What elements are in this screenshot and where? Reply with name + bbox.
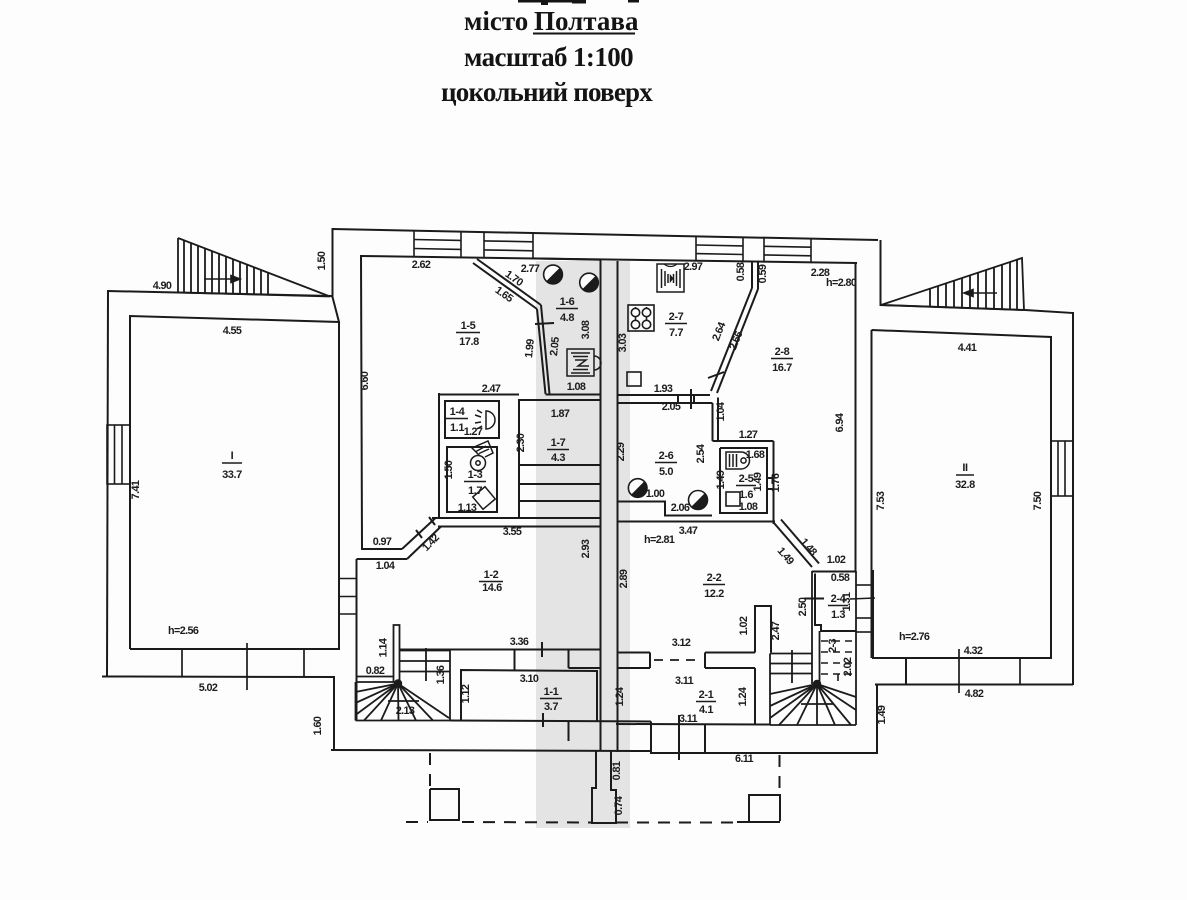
svg-text:1-2: 1-2 xyxy=(484,569,499,581)
svg-text:2.50: 2.50 xyxy=(797,597,809,616)
svg-text:2-1: 2-1 xyxy=(699,689,714,701)
svg-text:1.87: 1.87 xyxy=(551,408,570,420)
svg-text:1.14: 1.14 xyxy=(378,638,390,657)
svg-text:2.06: 2.06 xyxy=(671,502,690,514)
svg-text:2.77: 2.77 xyxy=(521,263,540,275)
svg-text:2.97: 2.97 xyxy=(684,261,703,273)
svg-text:1.99: 1.99 xyxy=(523,338,537,358)
svg-text:h=2.81: h=2.81 xyxy=(644,534,675,546)
svg-text:масштаб 1:100: масштаб 1:100 xyxy=(464,42,633,72)
svg-text:5.0: 5.0 xyxy=(659,466,673,478)
svg-text:2.93: 2.93 xyxy=(580,539,592,558)
svg-text:1.04: 1.04 xyxy=(376,560,395,572)
svg-text:33.7: 33.7 xyxy=(222,469,242,481)
svg-text:I: I xyxy=(231,450,234,462)
svg-text:7.41: 7.41 xyxy=(130,480,142,499)
svg-text:1.60: 1.60 xyxy=(312,716,324,735)
svg-text:1.49: 1.49 xyxy=(752,472,764,491)
svg-text:1.00: 1.00 xyxy=(646,488,665,500)
svg-text:1-3: 1-3 xyxy=(468,469,483,481)
svg-text:1.1: 1.1 xyxy=(450,422,464,434)
svg-text:2.89: 2.89 xyxy=(618,569,630,588)
svg-text:4.90: 4.90 xyxy=(153,280,172,292)
svg-text:6.60: 6.60 xyxy=(359,371,371,390)
svg-text:4.32: 4.32 xyxy=(964,645,983,657)
svg-text:2.13: 2.13 xyxy=(396,705,415,717)
svg-text:0.97: 0.97 xyxy=(373,536,392,548)
svg-text:місто: місто xyxy=(464,6,528,36)
svg-text:2.47: 2.47 xyxy=(770,621,782,640)
svg-text:7.53: 7.53 xyxy=(875,491,887,510)
svg-text:16.7: 16.7 xyxy=(772,362,792,374)
svg-text:6.11: 6.11 xyxy=(735,753,754,765)
svg-text:2.02: 2.02 xyxy=(842,657,854,676)
svg-text:2-8: 2-8 xyxy=(775,346,790,358)
svg-text:3.7: 3.7 xyxy=(544,701,558,713)
svg-text:1.7: 1.7 xyxy=(468,485,482,497)
svg-text:3.55: 3.55 xyxy=(503,526,522,538)
svg-text:4.55: 4.55 xyxy=(223,325,242,337)
svg-text:1-1: 1-1 xyxy=(544,686,559,698)
svg-text:4.82: 4.82 xyxy=(965,688,984,700)
svg-text:1.93: 1.93 xyxy=(654,383,673,395)
svg-text:5.02: 5.02 xyxy=(199,682,218,694)
svg-text:4.41: 4.41 xyxy=(958,342,977,354)
svg-text:0.81: 0.81 xyxy=(611,761,623,780)
svg-text:1.27: 1.27 xyxy=(739,429,758,441)
svg-text:14.6: 14.6 xyxy=(482,582,502,594)
svg-text:2.30: 2.30 xyxy=(515,433,527,452)
svg-text:1.68: 1.68 xyxy=(746,449,765,461)
svg-text:1-7: 1-7 xyxy=(551,437,566,449)
svg-text:Полтава: Полтава xyxy=(534,6,639,36)
svg-text:1.76: 1.76 xyxy=(770,473,782,492)
svg-text:цокольний поверх: цокольний поверх xyxy=(441,77,653,107)
svg-text:1.49: 1.49 xyxy=(715,470,727,489)
svg-text:3.36: 3.36 xyxy=(510,636,529,648)
svg-text:7.50: 7.50 xyxy=(1032,491,1044,510)
svg-text:0.59: 0.59 xyxy=(757,264,769,283)
svg-text:12.2: 12.2 xyxy=(704,588,724,600)
svg-text:h=2.56: h=2.56 xyxy=(168,625,199,637)
svg-text:1.08: 1.08 xyxy=(567,381,586,393)
svg-text:1.12: 1.12 xyxy=(460,684,472,703)
svg-text:1.31: 1.31 xyxy=(841,592,853,611)
svg-text:32.8: 32.8 xyxy=(955,479,975,491)
svg-text:h=2.76: h=2.76 xyxy=(899,631,930,643)
svg-text:3.08: 3.08 xyxy=(580,320,592,339)
svg-text:1.36: 1.36 xyxy=(435,665,447,684)
svg-text:1.50: 1.50 xyxy=(316,251,328,270)
svg-text:2.62: 2.62 xyxy=(412,259,431,271)
svg-text:2-7: 2-7 xyxy=(669,311,684,323)
svg-text:h=2.80: h=2.80 xyxy=(826,277,857,289)
svg-text:3.11: 3.11 xyxy=(679,713,698,725)
svg-text:1.04: 1.04 xyxy=(715,402,727,421)
svg-text:1-5: 1-5 xyxy=(461,320,476,332)
svg-text:1.50: 1.50 xyxy=(443,460,455,479)
svg-text:1.13: 1.13 xyxy=(458,502,477,514)
svg-text:3.11: 3.11 xyxy=(675,675,694,687)
svg-text:2.05: 2.05 xyxy=(548,336,562,356)
svg-text:1.27: 1.27 xyxy=(464,426,483,438)
svg-text:0.74: 0.74 xyxy=(613,796,625,815)
svg-text:1.08: 1.08 xyxy=(739,501,758,513)
svg-text:3.03: 3.03 xyxy=(617,333,629,352)
svg-text:2-6: 2-6 xyxy=(659,450,674,462)
svg-text:4.3: 4.3 xyxy=(551,452,565,464)
svg-text:2.47: 2.47 xyxy=(482,383,501,395)
svg-text:2.05: 2.05 xyxy=(662,401,681,413)
svg-text:3.47: 3.47 xyxy=(679,525,698,537)
svg-text:1.02: 1.02 xyxy=(738,616,750,635)
svg-text:0.58: 0.58 xyxy=(735,262,747,281)
svg-text:0.82: 0.82 xyxy=(366,665,385,677)
svg-text:3.12: 3.12 xyxy=(672,637,691,649)
svg-text:4.1: 4.1 xyxy=(699,704,713,716)
svg-text:1-6: 1-6 xyxy=(560,296,575,308)
svg-text:6.94: 6.94 xyxy=(834,413,846,432)
svg-text:0.58: 0.58 xyxy=(831,572,850,584)
svg-text:7.7: 7.7 xyxy=(669,327,683,339)
svg-text:1.02: 1.02 xyxy=(827,554,846,566)
svg-text:II: II xyxy=(962,462,968,474)
svg-text:2-2: 2-2 xyxy=(707,572,722,584)
svg-text:2.54: 2.54 xyxy=(695,444,707,463)
svg-text:1.49: 1.49 xyxy=(876,705,888,724)
svg-text:1-4: 1-4 xyxy=(450,406,466,418)
svg-text:4.8: 4.8 xyxy=(560,312,574,324)
svg-text:2.29: 2.29 xyxy=(615,442,627,461)
svg-text:17.8: 17.8 xyxy=(459,336,479,348)
svg-text:1.24: 1.24 xyxy=(614,687,626,706)
svg-text:3.10: 3.10 xyxy=(520,673,539,685)
svg-text:1.24: 1.24 xyxy=(737,687,749,706)
svg-text:2-3: 2-3 xyxy=(827,639,839,653)
